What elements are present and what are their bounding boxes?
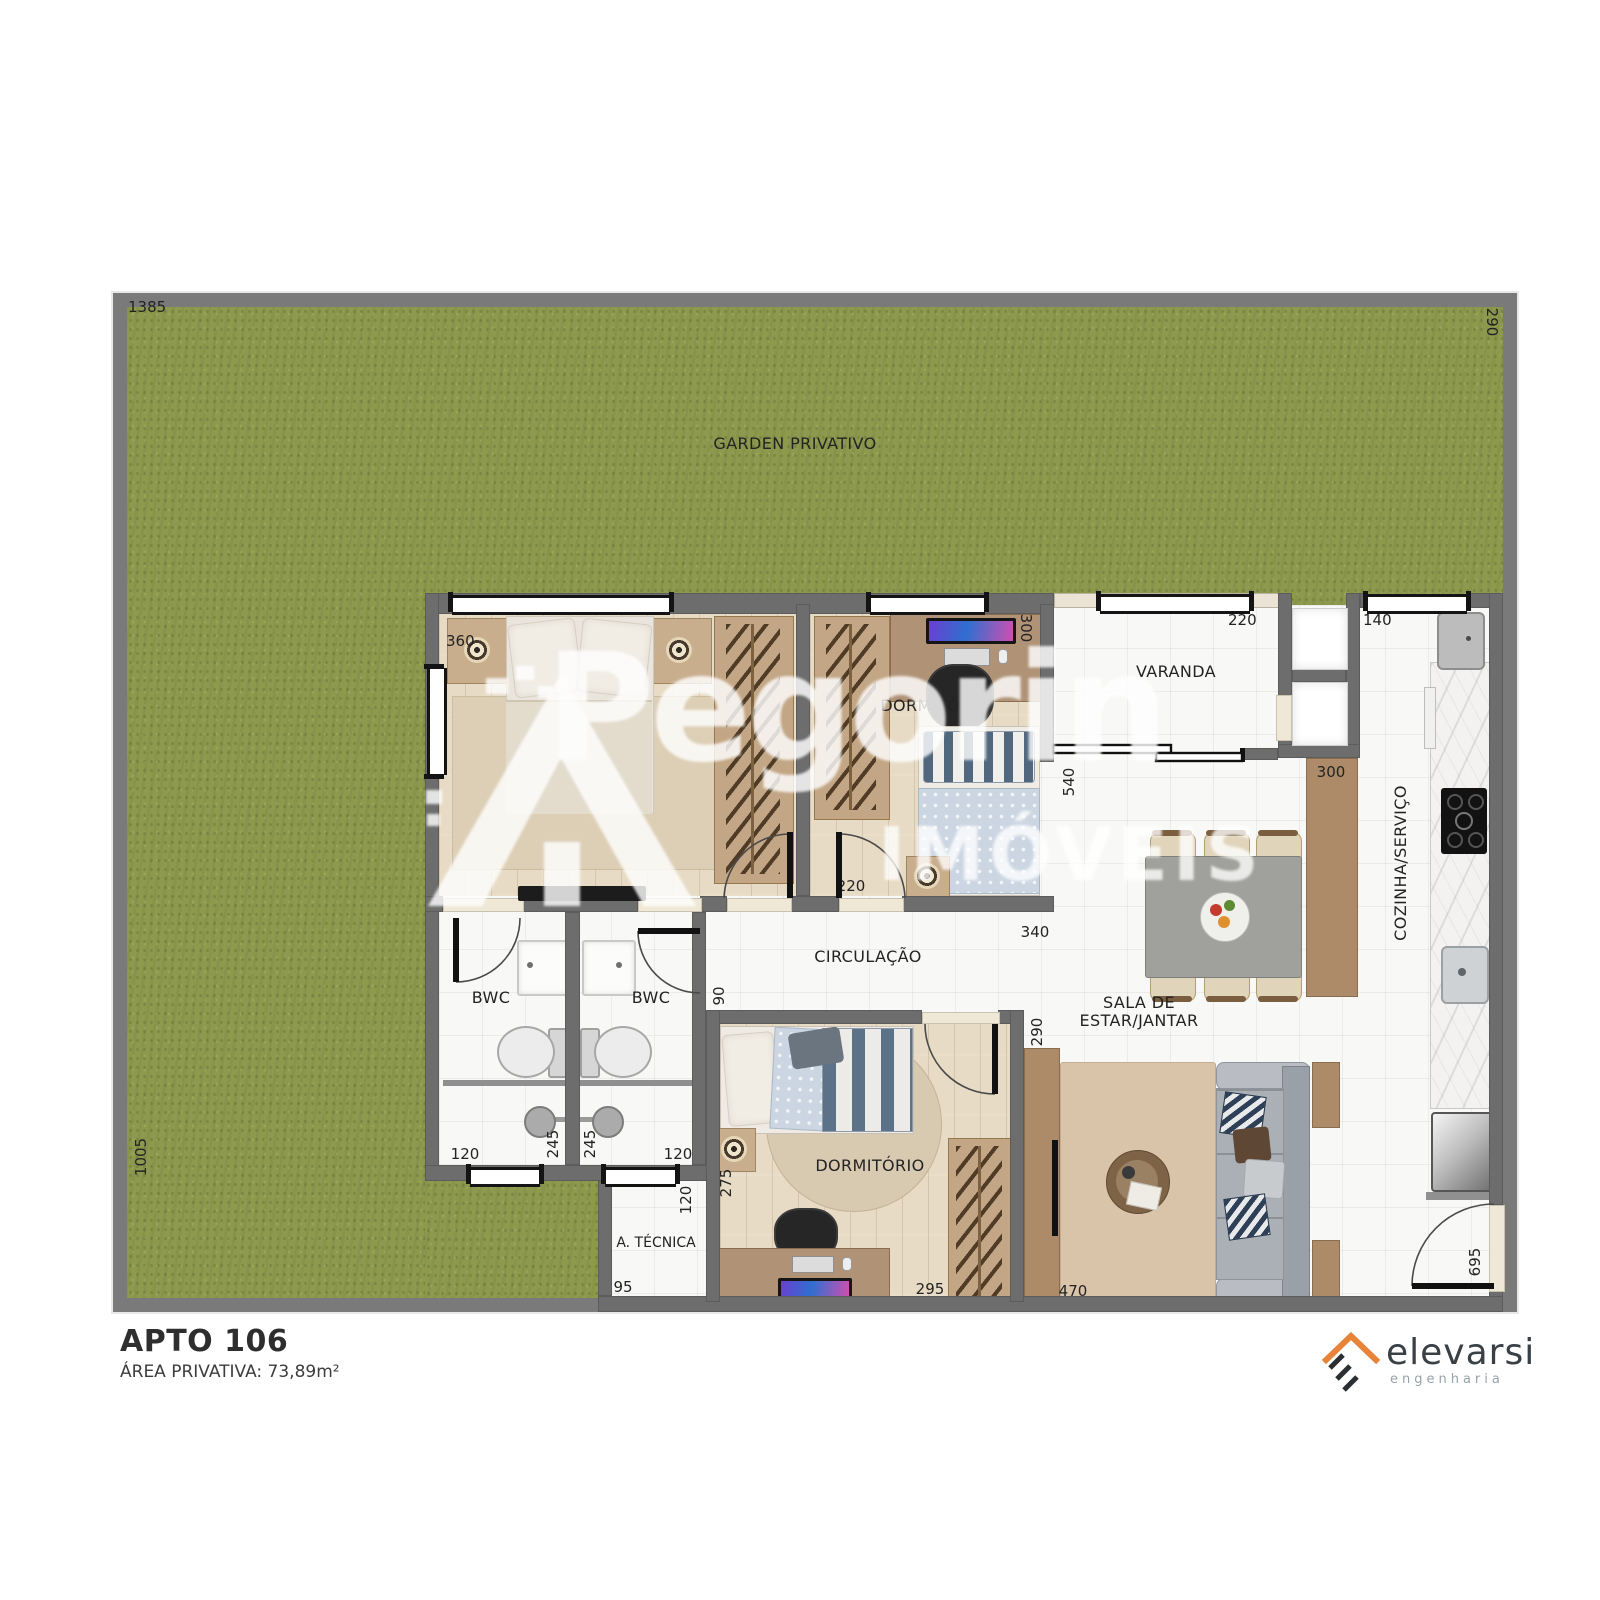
sala-label-line1: SALA DE	[1069, 995, 1209, 1011]
kitchen-dim-window: 140	[1363, 612, 1392, 628]
bwc1-dim-depth: 245	[545, 1127, 561, 1161]
wall-dorm3-left	[706, 1010, 720, 1302]
wall-dorm2-right	[1040, 604, 1054, 762]
bwc1-window	[470, 1167, 540, 1187]
sofa-backrest	[1282, 1066, 1310, 1304]
jamb-dorm1-door	[727, 898, 792, 912]
bwc2-dim-depth: 245	[582, 1127, 598, 1161]
bwc2-window	[605, 1167, 676, 1187]
bwc2-dim-window: 120	[658, 1146, 698, 1162]
garden-label: GARDEN PRIVATIVO	[695, 436, 895, 452]
kitchen-faucet-icon	[1458, 968, 1466, 976]
stove-burner-2	[1468, 794, 1484, 810]
dorm1-wardrobe-rail	[751, 624, 754, 874]
elevarsi-logo-tagline: engenharia	[1390, 1372, 1504, 1387]
kitchen-sink-icon	[1441, 946, 1489, 1004]
wall-dorms-bottom-5	[902, 896, 1054, 912]
jamb-entry-door	[1489, 1205, 1505, 1292]
dining-chairback-top-1	[1152, 830, 1192, 836]
circulation-label: CIRCULAÇÃO	[798, 949, 938, 965]
wall-bwc2-right	[692, 912, 706, 1165]
stove-burner-3	[1455, 812, 1473, 830]
kitchen-cabinet-door	[1424, 687, 1436, 749]
fridge-handle	[1466, 636, 1471, 641]
wall-pillar-right	[1346, 593, 1360, 758]
dorm2-wardrobe-rail	[849, 624, 852, 810]
bwc2-faucet-icon	[616, 962, 622, 968]
elevarsi-stroke-2	[1337, 1366, 1350, 1379]
wall-dorm3-top-left	[706, 1010, 922, 1024]
atecnica-dim-width: 120	[678, 1183, 694, 1217]
jamb-dorm3-door	[922, 1012, 1000, 1024]
fruit-orange	[1218, 916, 1230, 928]
stove-burner-4	[1447, 832, 1463, 848]
bwc2-label: BWC	[621, 990, 681, 1006]
coffee-table-cup	[1122, 1166, 1135, 1179]
dorm2-lamp-icon	[914, 863, 940, 889]
varanda-dim-window: 220	[1228, 612, 1257, 628]
dorm3-label: DORMITÓRIO	[810, 1158, 930, 1174]
pillar-closet-top	[1292, 608, 1348, 670]
atecnica-label: A. TÉCNICA	[601, 1235, 711, 1251]
dorm1-tv-icon	[518, 886, 646, 901]
kitchen-dim-counter: 300	[1311, 764, 1351, 780]
dorm3-dim-left: 275	[718, 1166, 734, 1200]
wall-pillar-mid	[1292, 668, 1346, 682]
dorm2-mouse-icon	[998, 649, 1008, 664]
dorm1-blanket	[506, 700, 652, 814]
varanda-label: VARANDA	[1116, 664, 1236, 680]
sala-dim-length: 470	[1053, 1283, 1093, 1299]
bwc1-dim-window: 120	[445, 1146, 485, 1162]
kitchen-counter	[1430, 662, 1491, 1109]
dining-chairback-bottom-2	[1206, 996, 1246, 1002]
dorm1-pillow-right	[575, 618, 652, 699]
bwc1-toilet-bowl	[497, 1026, 555, 1078]
garden-grass-lower-patch	[425, 1181, 598, 1296]
tv-icon	[1052, 1140, 1058, 1236]
bwc2-shower-divider	[580, 1080, 700, 1086]
service-shelf	[1426, 1192, 1496, 1200]
bwc1-sink	[517, 940, 571, 996]
fruit-red	[1210, 904, 1222, 916]
garden-dim-right: 290	[1484, 305, 1500, 339]
floorplan-canvas: 1385 290 1005 GARDEN PRIVATIVO 360 DORMI…	[0, 0, 1600, 1600]
wall-dorm-divider	[796, 604, 810, 896]
bwc2-toilet-bowl	[594, 1026, 652, 1078]
dorm1-dim-width: 360	[446, 633, 475, 649]
sofa-side-table-top	[1312, 1062, 1340, 1128]
stove-burner-1	[1447, 794, 1463, 810]
varanda-dim-opening: 540	[1061, 765, 1077, 799]
dorm2-dim-depth: 300	[1018, 611, 1034, 645]
bwc1-faucet-icon	[527, 962, 533, 968]
wall-dorm3-right	[1010, 1010, 1024, 1302]
wall-dorms-bottom-4	[790, 896, 839, 912]
wall-dorms-bottom-1	[425, 896, 443, 912]
wall-bottom-outer	[598, 1296, 1503, 1312]
garden-dim-left: 1005	[133, 1136, 149, 1178]
circulation-dim-width: 90	[711, 982, 727, 1010]
wall-slider-stub	[1240, 748, 1278, 760]
sala-label-line2: ESTAR/JANTAR	[1069, 1013, 1209, 1029]
kitchen-dim-entry: 695	[1467, 1245, 1483, 1279]
bwc1-shower-divider	[443, 1080, 565, 1086]
plan-area: ÁREA PRIVATIVA: 73,89m²	[120, 1362, 340, 1382]
dorm1-pillow-left	[507, 617, 584, 699]
dorm2-window	[870, 595, 985, 615]
dorm3-dim-width: 295	[910, 1281, 950, 1297]
fridge-icon	[1437, 612, 1485, 670]
dorm3-lamp-icon	[721, 1136, 747, 1162]
dorm1-lamp-right-icon	[666, 637, 692, 663]
dorm2-dim-door: 220	[831, 878, 871, 894]
atecnica-dim-length: 95	[608, 1279, 638, 1295]
dorm2-monitor-icon	[926, 618, 1016, 644]
dorm3-mouse-icon	[842, 1257, 852, 1271]
washing-machine-icon	[1431, 1112, 1495, 1192]
jamb-bwc2-door	[638, 898, 702, 912]
wall-pillar-bottom	[1278, 744, 1360, 758]
elevarsi-roof-orange	[1326, 1336, 1376, 1360]
stove-burner-5	[1468, 832, 1484, 848]
dorm1-window	[452, 595, 670, 615]
elevarsi-logo-name: elevarsi	[1386, 1332, 1535, 1373]
dorm2-striped-pillow	[923, 731, 1035, 783]
dorm2-label: DORMITÓRIO	[875, 698, 995, 714]
jamb-bwc1-door	[443, 898, 524, 912]
dining-chairback-top-3	[1258, 830, 1298, 836]
wall-dorms-bottom-3	[700, 896, 727, 912]
jamb-pillar-door	[1276, 695, 1292, 741]
elevarsi-logo-icon	[1318, 1328, 1382, 1396]
dorm2-keyboard-icon	[944, 648, 990, 666]
kitchen-peninsula	[1306, 758, 1358, 997]
plan-title: APTO 106	[120, 1324, 288, 1359]
dorm1-side-window	[427, 668, 447, 775]
sala-dim-opening: 290	[1029, 1015, 1045, 1049]
wall-right-outer-upper	[1489, 593, 1503, 1205]
pillar-closet-bottom	[1292, 682, 1348, 746]
bwc2-sink	[582, 940, 636, 996]
bwc1-label: BWC	[461, 990, 521, 1006]
circulation-dim-length: 340	[1015, 924, 1055, 940]
dining-chairback-top-2	[1206, 830, 1246, 836]
sofa-pillow-zigzag-2	[1223, 1193, 1270, 1240]
dining-chairback-bottom-3	[1258, 996, 1298, 1002]
garden-dim-top: 1385	[128, 299, 166, 315]
dorm3-wardrobe-rail	[978, 1146, 981, 1296]
elevarsi-stroke-3	[1344, 1377, 1357, 1390]
dorm3-keyboard-icon	[792, 1256, 834, 1273]
kitchen-label: COZINHA/SERVIÇO	[1393, 778, 1409, 948]
jamb-dorm2-door	[839, 898, 904, 912]
wall-bwc-divider	[565, 912, 580, 1165]
fruit-green	[1224, 900, 1235, 911]
